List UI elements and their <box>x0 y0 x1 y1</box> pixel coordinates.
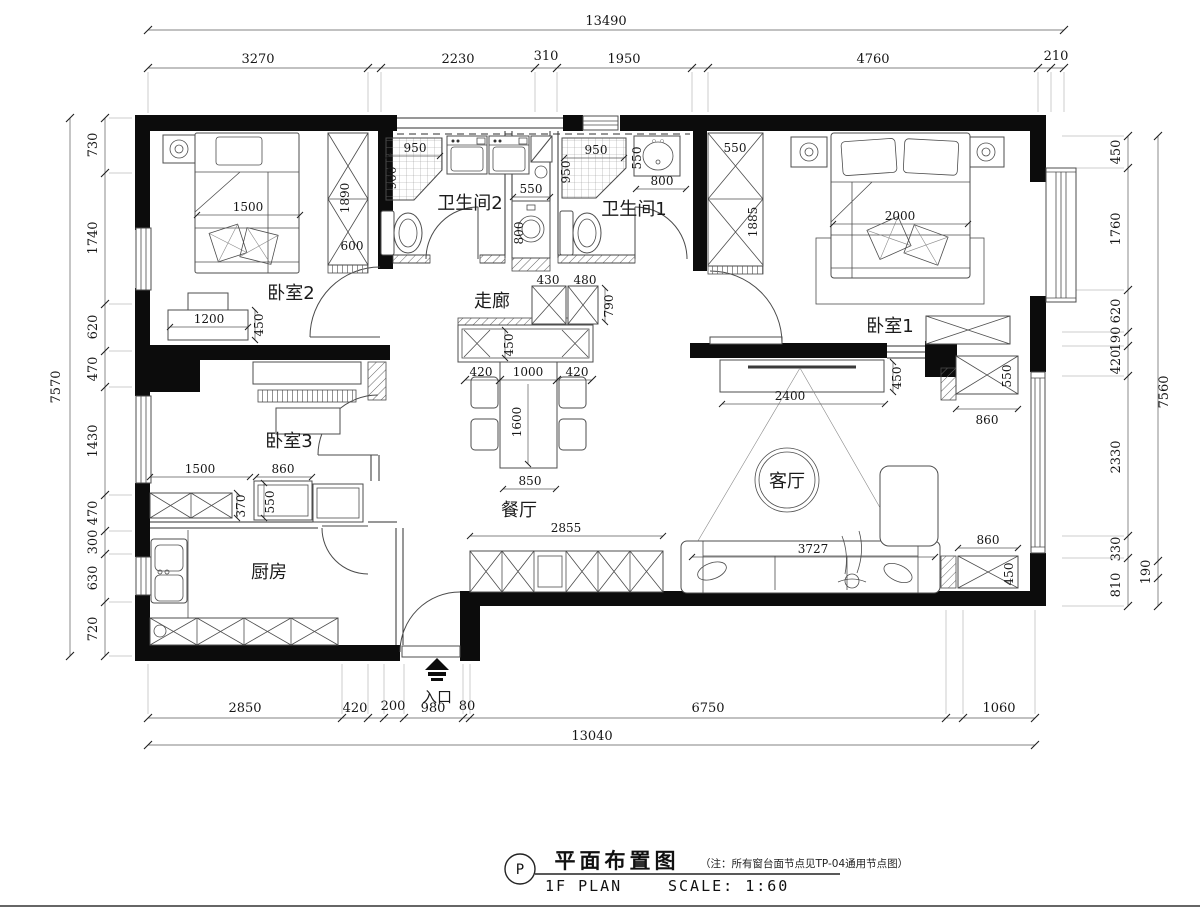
title-block: P 平面布置图 （注：所有窗台面节点见TP-04通用节点图） 1F PLAN S… <box>0 849 1200 906</box>
dim-right-4: 190 <box>1109 327 1124 352</box>
dim-shower1-w: 950 <box>585 143 608 157</box>
dim-tv-depth: 450 <box>890 367 904 390</box>
dim-cab-ne-w: 860 <box>976 413 999 427</box>
door-bathroom2 <box>426 207 478 259</box>
entry-storage-cabinets <box>470 551 663 592</box>
dim-right-2: 1760 <box>1109 212 1124 245</box>
dim-bottom-3: 200 <box>381 699 406 714</box>
entrance-marker <box>425 658 449 681</box>
dim-bottom-2: 420 <box>343 701 368 716</box>
dim-left-4: 470 <box>86 357 101 382</box>
chair <box>471 419 498 450</box>
sofa <box>681 466 940 593</box>
plan-marker: P <box>516 862 524 878</box>
plan-title-en: 1F PLAN <box>545 877 622 895</box>
dim-bottom-1: 2850 <box>228 701 261 716</box>
dim-left-1: 730 <box>86 133 101 158</box>
dim-bed3-cab-w: 860 <box>272 462 295 476</box>
dim-tv-wall: 2400 <box>775 389 806 403</box>
plan-note: （注：所有窗台面节点见TP-04通用节点图） <box>700 857 908 870</box>
bedside-lamp <box>163 135 195 163</box>
dim-right-extra: 190 <box>1139 560 1154 585</box>
dim-dresser-w: 1200 <box>194 312 225 326</box>
dim-bed1-w: 2000 <box>885 209 916 223</box>
dim-table-w: 1000 <box>513 365 544 379</box>
dim-bottom-7: 1060 <box>982 701 1015 716</box>
dim-right-7: 330 <box>1109 537 1124 562</box>
dim-cab-se-w: 860 <box>977 533 1000 547</box>
label-kitchen: 厨房 <box>251 562 287 583</box>
furniture-dining <box>458 325 593 468</box>
window-corridor-top <box>583 116 618 130</box>
dim-top-3: 310 <box>534 49 559 64</box>
dim-wardrobe2-h: 1890 <box>338 183 352 214</box>
toilet <box>381 211 422 255</box>
washing-machine <box>447 136 487 174</box>
furniture-kitchen <box>150 530 338 645</box>
dim-sideboard-d: 450 <box>502 334 516 357</box>
dim-bed3-span: 1500 <box>185 462 216 476</box>
dim-wardrobe1-w: 550 <box>724 141 747 155</box>
window-bedroom2-left <box>136 228 151 290</box>
corner-shelf <box>531 136 552 162</box>
dim-bed3-cab-d2: 550 <box>263 491 277 514</box>
furniture-bedroom2 <box>163 133 368 340</box>
label-entrance: 入口 <box>422 688 452 706</box>
dim-dresser-d: 450 <box>252 314 266 337</box>
window-bedroom3-left <box>136 396 151 483</box>
dim-shower2-d: 900 <box>385 167 399 190</box>
dim-bottom-6: 6750 <box>691 701 724 716</box>
dim-cab-se-d: 450 <box>1002 563 1016 586</box>
door-bedroom1 <box>710 271 782 344</box>
plan-scale: SCALE: 1:60 <box>668 877 789 895</box>
chair <box>559 419 586 450</box>
dim-left-7: 300 <box>86 530 101 555</box>
dim-bottom-total: 13040 <box>571 729 612 744</box>
chair <box>559 377 586 408</box>
dim-left-5: 1430 <box>86 424 101 457</box>
door-entry <box>400 592 460 657</box>
dim-table-end: 850 <box>519 474 542 488</box>
dim-shower2-w: 950 <box>404 141 427 155</box>
refrigerator <box>313 484 363 522</box>
nightstand <box>791 137 827 167</box>
dim-right-3: 620 <box>1109 299 1124 324</box>
furniture-living <box>681 356 1018 593</box>
label-bathroom1: 卫生间1 <box>601 199 666 220</box>
chair <box>471 377 498 408</box>
dim-left-total: 7570 <box>49 370 64 403</box>
label-bedroom1: 卧室1 <box>866 316 913 337</box>
label-living: 客厅 <box>769 471 805 492</box>
washing-machine <box>489 136 529 174</box>
label-bedroom2: 卧室2 <box>267 283 314 304</box>
dim-sofa-w: 3727 <box>798 542 829 556</box>
floorplan-drawing: 13490 3270 2230 310 1950 4760 210 7570 7… <box>0 0 1200 910</box>
kitchen-sink <box>151 539 187 603</box>
dim-left-8: 630 <box>86 566 101 591</box>
dim-entry-cabinets: 2855 <box>551 521 582 535</box>
dim-bed2: 1500 <box>233 200 264 214</box>
dim-top-total: 13490 <box>585 14 626 29</box>
entry-arrow-icon <box>425 658 449 670</box>
dim-chair-right: 420 <box>566 365 589 379</box>
dim-corridor-cab-d: 790 <box>602 295 616 318</box>
chaise <box>880 466 938 546</box>
dim-corridor-cab2: 480 <box>574 273 597 287</box>
label-bedroom3: 卧室3 <box>265 431 312 452</box>
door-bedroom2 <box>310 267 380 337</box>
dim-top-5: 4760 <box>856 52 889 67</box>
door-kitchen <box>322 526 368 574</box>
dim-wardrobe2-w: 600 <box>341 239 364 253</box>
dim-right-1: 450 <box>1109 140 1124 165</box>
dim-right-total: 7560 <box>1157 375 1172 408</box>
plan-title: 平面布置图 <box>555 849 680 873</box>
dim-top-6: 210 <box>1044 49 1069 64</box>
dim-basin1-d: 800 <box>651 174 674 188</box>
dim-right-8: 810 <box>1109 573 1124 598</box>
dim-left-9: 720 <box>86 617 101 642</box>
sideboard <box>458 325 593 362</box>
dim-right-5: 420 <box>1109 350 1124 375</box>
dim-right-6: 2330 <box>1109 440 1124 473</box>
dim-chain-right: 450 1760 620 190 420 2330 330 810 7560 1… <box>1062 132 1172 610</box>
dim-bottom-5: 80 <box>459 699 476 714</box>
dim-chain-top: 13490 3270 2230 310 1950 4760 210 <box>144 14 1068 113</box>
floorplan-sheet: 13490 3270 2230 310 1950 4760 210 7570 7… <box>0 0 1200 910</box>
dim-left-6: 470 <box>86 501 101 526</box>
nightstand <box>968 137 1004 167</box>
dim-cab-ne-d: 550 <box>1000 365 1014 388</box>
dim-top-1: 3270 <box>241 52 274 67</box>
dim-table-l: 1600 <box>510 407 524 438</box>
dim-chain-left: 7570 730 1740 620 470 1430 470 300 630 7… <box>49 114 132 660</box>
dim-top-2: 2230 <box>441 52 474 67</box>
dim-vanity-w: 550 <box>520 182 543 196</box>
furniture-corridor <box>532 286 598 324</box>
toilet <box>560 211 601 255</box>
dim-top-4: 1950 <box>607 52 640 67</box>
furniture-entry <box>470 551 663 592</box>
dim-basin1-w: 550 <box>630 147 644 170</box>
dim-bed3-cab-d1: 370 <box>234 495 248 518</box>
dim-wardrobe1-h: 1885 <box>746 207 760 238</box>
dim-left-3: 620 <box>86 315 101 340</box>
furniture-bathroom1 <box>560 136 680 255</box>
tv-cabinet <box>720 360 884 392</box>
insulated-pier <box>368 362 386 400</box>
window-living-right <box>1031 372 1045 553</box>
dim-chair-left: 420 <box>470 365 493 379</box>
piano-keys <box>258 390 356 402</box>
dim-vanity-d: 800 <box>512 222 526 245</box>
dim-left-2: 1740 <box>86 221 101 254</box>
label-dining: 餐厅 <box>501 500 537 521</box>
window-bedroom1-bay <box>1046 168 1076 302</box>
dim-corridor-cab1: 430 <box>537 273 560 287</box>
furniture-bedroom1 <box>708 133 1010 344</box>
window-kitchen-left <box>136 557 151 595</box>
desk <box>253 362 361 384</box>
dim-shower1-d: 950 <box>559 161 573 184</box>
label-corridor: 走廊 <box>474 291 510 312</box>
label-bathroom2: 卫生间2 <box>437 193 502 214</box>
